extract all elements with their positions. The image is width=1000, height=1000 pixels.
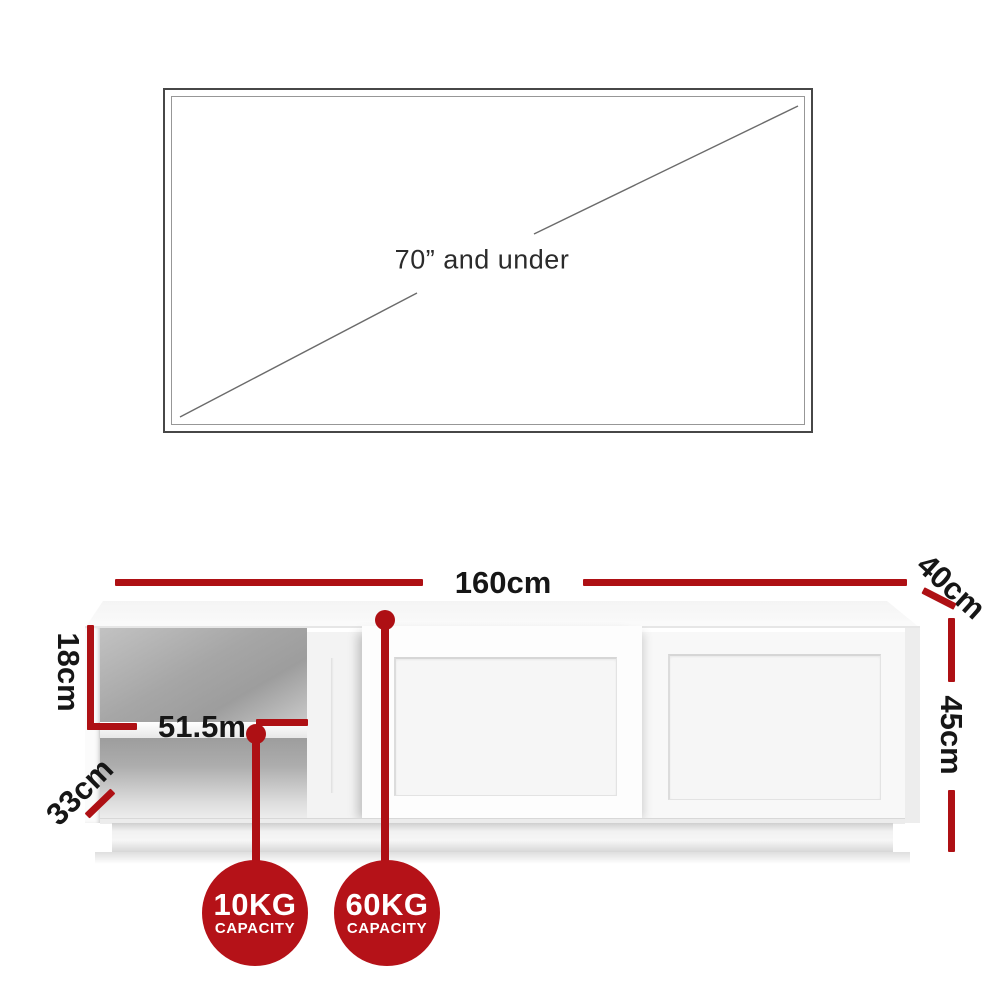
capacity-badge-10kg: 10KG CAPACITY (202, 860, 308, 966)
door-recessed-panel (668, 654, 881, 800)
dim-label-height: 45cm (928, 685, 974, 785)
dim-line-width-right (583, 579, 907, 586)
callout-dot-60kg (375, 610, 395, 630)
cabinet-top-face (85, 600, 920, 628)
cabinet-right-side (905, 628, 920, 823)
dim-line-compartment-height-foot (87, 723, 137, 730)
dim-line-compartment-height (87, 625, 94, 730)
tv-size-label: 70” and under (395, 245, 570, 276)
tv-screen: 70” and under (171, 96, 805, 425)
open-compartment-bottom (100, 738, 307, 818)
callout-stem-10kg (252, 734, 260, 862)
dim-line-height-bottom (948, 790, 955, 852)
cabinet-plinth (112, 823, 893, 852)
door-recessed-panel (394, 657, 617, 796)
dim-label-compartment-width: 51.5m (142, 707, 262, 747)
capacity-label: CAPACITY (215, 921, 295, 938)
tv-outline: 70” and under (163, 88, 813, 433)
capacity-badge-60kg: 60KG CAPACITY (334, 860, 440, 966)
dim-line-width-left (115, 579, 423, 586)
dim-line-height-top (948, 618, 955, 682)
floor-shadow (95, 852, 910, 864)
callout-stem-60kg (381, 620, 389, 862)
sliding-door-right (642, 632, 905, 818)
door-panel-edge (331, 658, 334, 793)
sliding-door-middle (362, 626, 642, 822)
product-dimension-diagram: 70” and under 160cm 40cm 45cm 18cm (0, 0, 1000, 1000)
capacity-weight: 60KG (346, 889, 429, 921)
dim-label-compartment-height: 18cm (45, 622, 91, 722)
capacity-weight: 10KG (214, 889, 297, 921)
dim-label-width: 160cm (423, 562, 583, 604)
dim-line-compartment-width (256, 719, 308, 726)
callout-dot-10kg (246, 724, 266, 744)
sliding-door-rear-left (307, 632, 362, 818)
capacity-label: CAPACITY (347, 921, 427, 938)
